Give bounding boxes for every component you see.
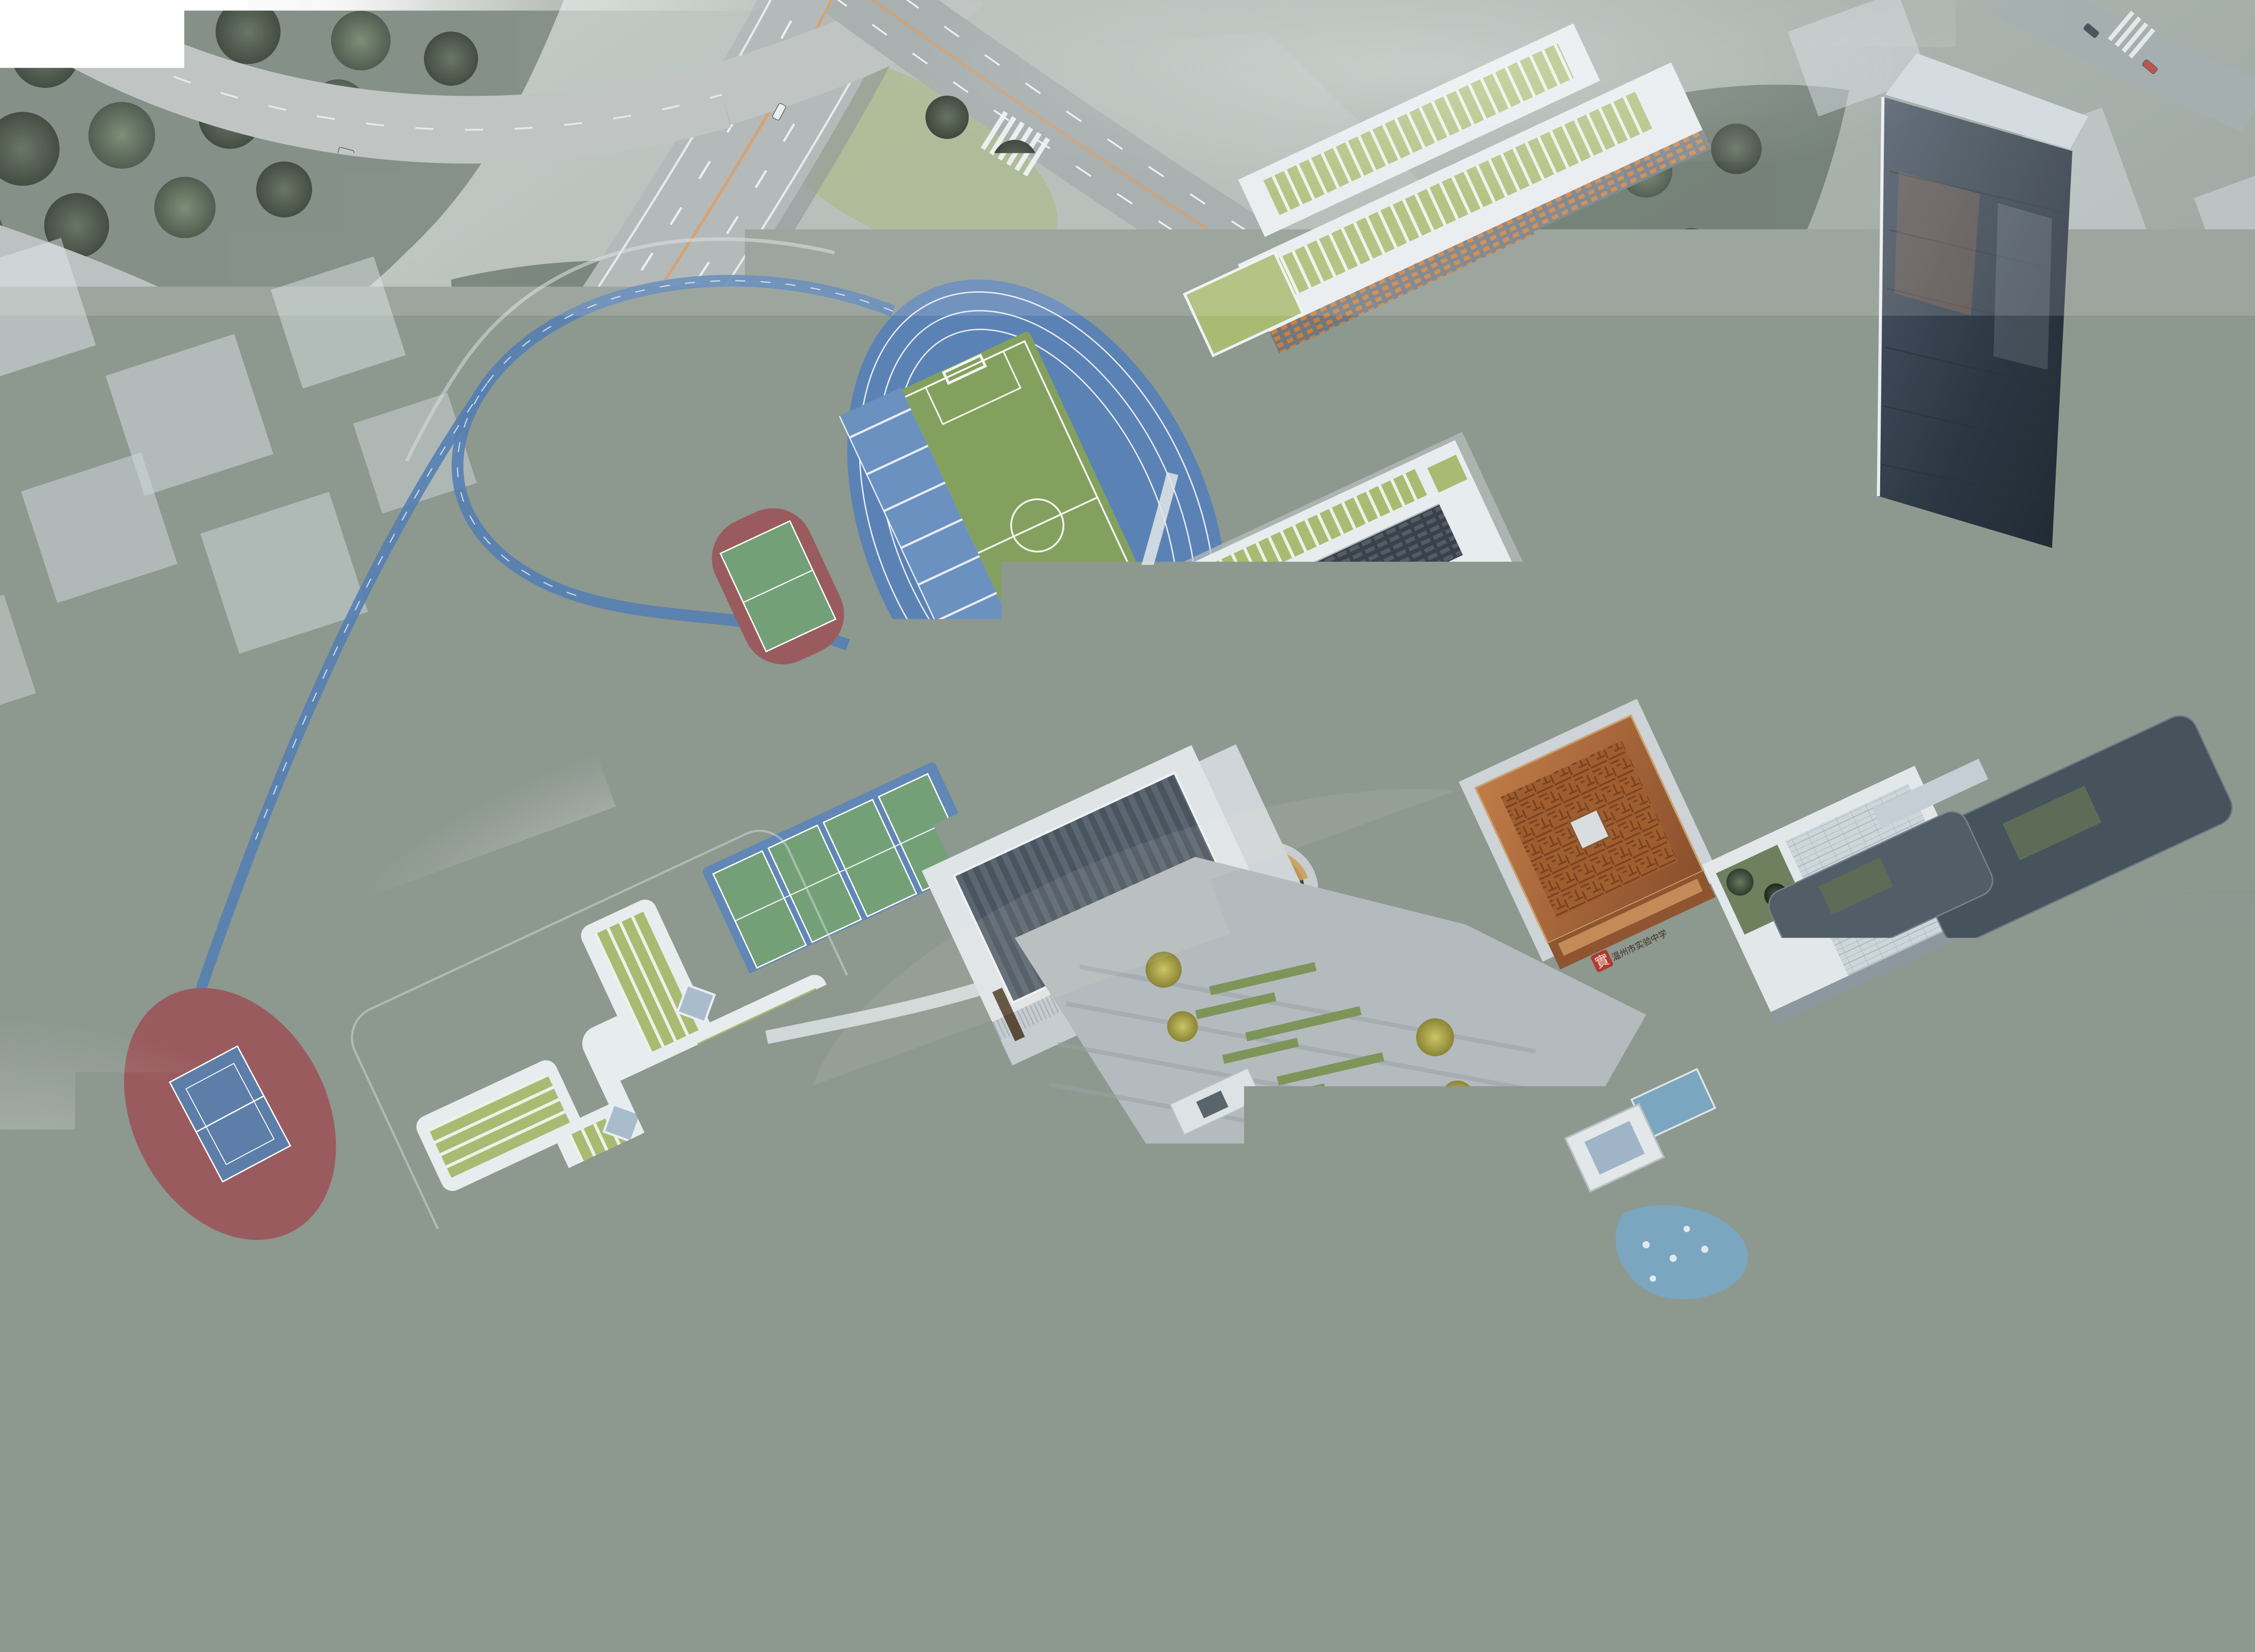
campus-aerial-rendering: Bird's-eye dawn rendering of a school ca… [0,0,2255,1652]
ginkgo-tree [1441,1081,1474,1113]
